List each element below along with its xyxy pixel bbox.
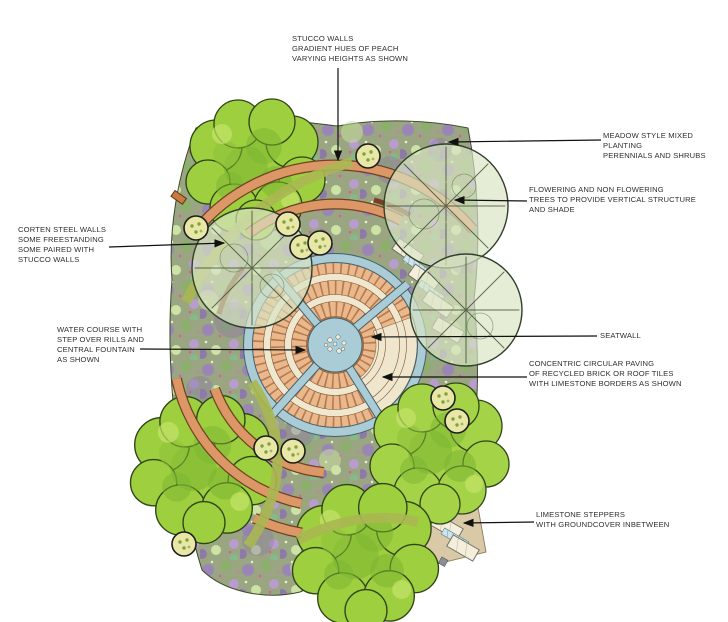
translucent-tree [384, 144, 508, 268]
annotation-meadow-planting: MEADOW STYLE MIXED PLANTING PERENNIALS A… [603, 131, 728, 161]
landscape-plan-sheet: STUCCO WALLS GRADIENT HUES OF PEACH VARY… [0, 0, 728, 622]
annotation-flowering-trees: FLOWERING AND NON FLOWERING TREES TO PRO… [529, 185, 696, 215]
annotation-stucco-walls: STUCCO WALLS GRADIENT HUES OF PEACH VARY… [292, 34, 408, 64]
annotation-circular-paving: CONCENTRIC CIRCULAR PAVING OF RECYCLED B… [529, 359, 682, 389]
central-fountain [308, 318, 362, 372]
annotation-limestone-steppers: LIMESTONE STEPPERS WITH GROUNDCOVER INBE… [536, 510, 669, 530]
translucent-tree [410, 254, 522, 366]
annotation-water-course: WATER COURSE WITH STEP OVER RILLS AND CE… [57, 325, 144, 365]
leader-meadow-planting [449, 140, 601, 142]
annotation-seatwall: SEATWALL [600, 331, 641, 341]
annotation-corten-walls: CORTEN STEEL WALLS SOME FREESTANDING SOM… [18, 225, 106, 265]
